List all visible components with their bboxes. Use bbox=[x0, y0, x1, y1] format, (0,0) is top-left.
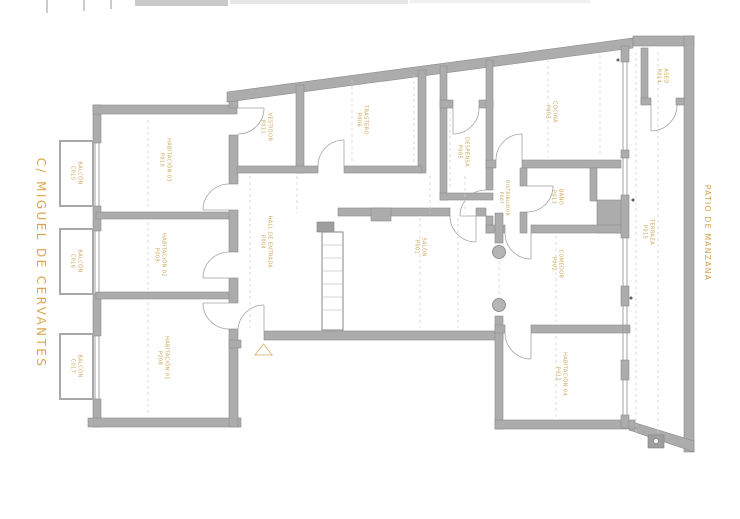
svg-text:TERRAZA: TERRAZA bbox=[649, 218, 655, 245]
svg-text:P010: P010 bbox=[159, 153, 165, 167]
entrance-triangle-icon bbox=[255, 344, 272, 355]
svg-text:P008: P008 bbox=[157, 351, 163, 365]
hall-closet-island bbox=[317, 222, 343, 330]
svg-text:P002: P002 bbox=[551, 257, 557, 271]
svg-text:P005: P005 bbox=[457, 145, 463, 159]
svg-text:COCINA: COCINA bbox=[552, 101, 558, 123]
svg-text:P013: P013 bbox=[551, 190, 557, 204]
room-label-comedor: COMEDORP002 bbox=[551, 250, 564, 279]
svg-text:C017: C017 bbox=[70, 359, 76, 374]
room-label-habitacion-01: HABITACIÓN 01P008 bbox=[157, 336, 171, 380]
street-label: C/ MIGUEL DE CERVANTES bbox=[34, 158, 48, 369]
svg-text:DISTRIBUIDOR: DISTRIBUIDOR bbox=[504, 180, 510, 216]
svg-text:P001: P001 bbox=[414, 240, 420, 254]
room-label-salon: SALÓNP001 bbox=[414, 238, 428, 257]
svg-text:P004: P004 bbox=[260, 235, 266, 249]
svg-text:HABITACIÓN 03: HABITACIÓN 03 bbox=[166, 138, 173, 182]
svg-text:C016: C016 bbox=[70, 254, 76, 269]
svg-text:ASEO: ASEO bbox=[663, 68, 669, 83]
svg-text:P012: P012 bbox=[555, 367, 561, 381]
scale-bar bbox=[47, 0, 590, 13]
svg-text:HABITACIÓN 04: HABITACIÓN 04 bbox=[562, 352, 569, 396]
svg-text:P003: P003 bbox=[545, 105, 551, 119]
svg-text:HALL DE ENTRADA: HALL DE ENTRADA bbox=[267, 216, 273, 269]
balconies bbox=[60, 141, 93, 399]
svg-text:BALCÓN: BALCÓN bbox=[77, 354, 84, 377]
room-label-habitacion-02: HABITACIÓN 02P009 bbox=[154, 233, 168, 277]
walls bbox=[88, 36, 694, 452]
svg-text:HABITACIÓN 01: HABITACIÓN 01 bbox=[164, 336, 171, 380]
svg-text:BALCÓN: BALCÓN bbox=[77, 249, 84, 272]
svg-text:P007: P007 bbox=[498, 192, 504, 204]
room-label-aseo: ASEOP014 bbox=[656, 68, 669, 83]
room-label-habitacion-04: HABITACIÓN 04P012 bbox=[555, 352, 569, 396]
svg-text:BALCÓN: BALCÓN bbox=[77, 161, 84, 184]
svg-text:P011: P011 bbox=[260, 120, 266, 134]
svg-text:P014: P014 bbox=[656, 69, 662, 83]
patio-label: PATIO DE MANZANA bbox=[703, 185, 712, 282]
room-label-hall-de-entrada: HALL DE ENTRADAP004 bbox=[260, 216, 273, 269]
floorplan-canvas: HABITACIÓN 03P010 HABITACIÓN 02P009 HABI… bbox=[0, 0, 740, 519]
room-label-despensa: DESPENSAP005 bbox=[457, 137, 470, 167]
room-label-bano: BAÑOP013 bbox=[551, 189, 565, 205]
svg-text:P015: P015 bbox=[642, 225, 648, 239]
svg-text:C015: C015 bbox=[70, 166, 76, 181]
svg-text:SALÓN: SALÓN bbox=[421, 238, 428, 257]
room-label-vestidor: VESTIDORP011 bbox=[260, 113, 273, 142]
svg-text:COMEDOR: COMEDOR bbox=[558, 250, 564, 279]
svg-text:P009: P009 bbox=[154, 248, 160, 262]
room-label-trastero: TRASTEROP006 bbox=[356, 104, 369, 135]
room-label-distribuidor: DISTRIBUIDORP007 bbox=[498, 180, 510, 216]
room-label-cocina: COCINAP003 bbox=[545, 101, 558, 123]
room-label-terraza: TERRAZAP015 bbox=[642, 218, 655, 245]
svg-text:P006: P006 bbox=[356, 113, 362, 127]
svg-text:HABITACIÓN 02: HABITACIÓN 02 bbox=[161, 233, 168, 277]
svg-text:VESTIDOR: VESTIDOR bbox=[267, 113, 273, 142]
svg-text:TRASTERO: TRASTERO bbox=[363, 104, 369, 135]
svg-text:DESPENSA: DESPENSA bbox=[464, 137, 470, 167]
svg-text:BAÑO: BAÑO bbox=[558, 189, 565, 205]
room-label-habitacion-03: HABITACIÓN 03P010 bbox=[159, 138, 173, 182]
floorplan-drawing: HABITACIÓN 03P010 HABITACIÓN 02P009 HABI… bbox=[0, 0, 740, 519]
